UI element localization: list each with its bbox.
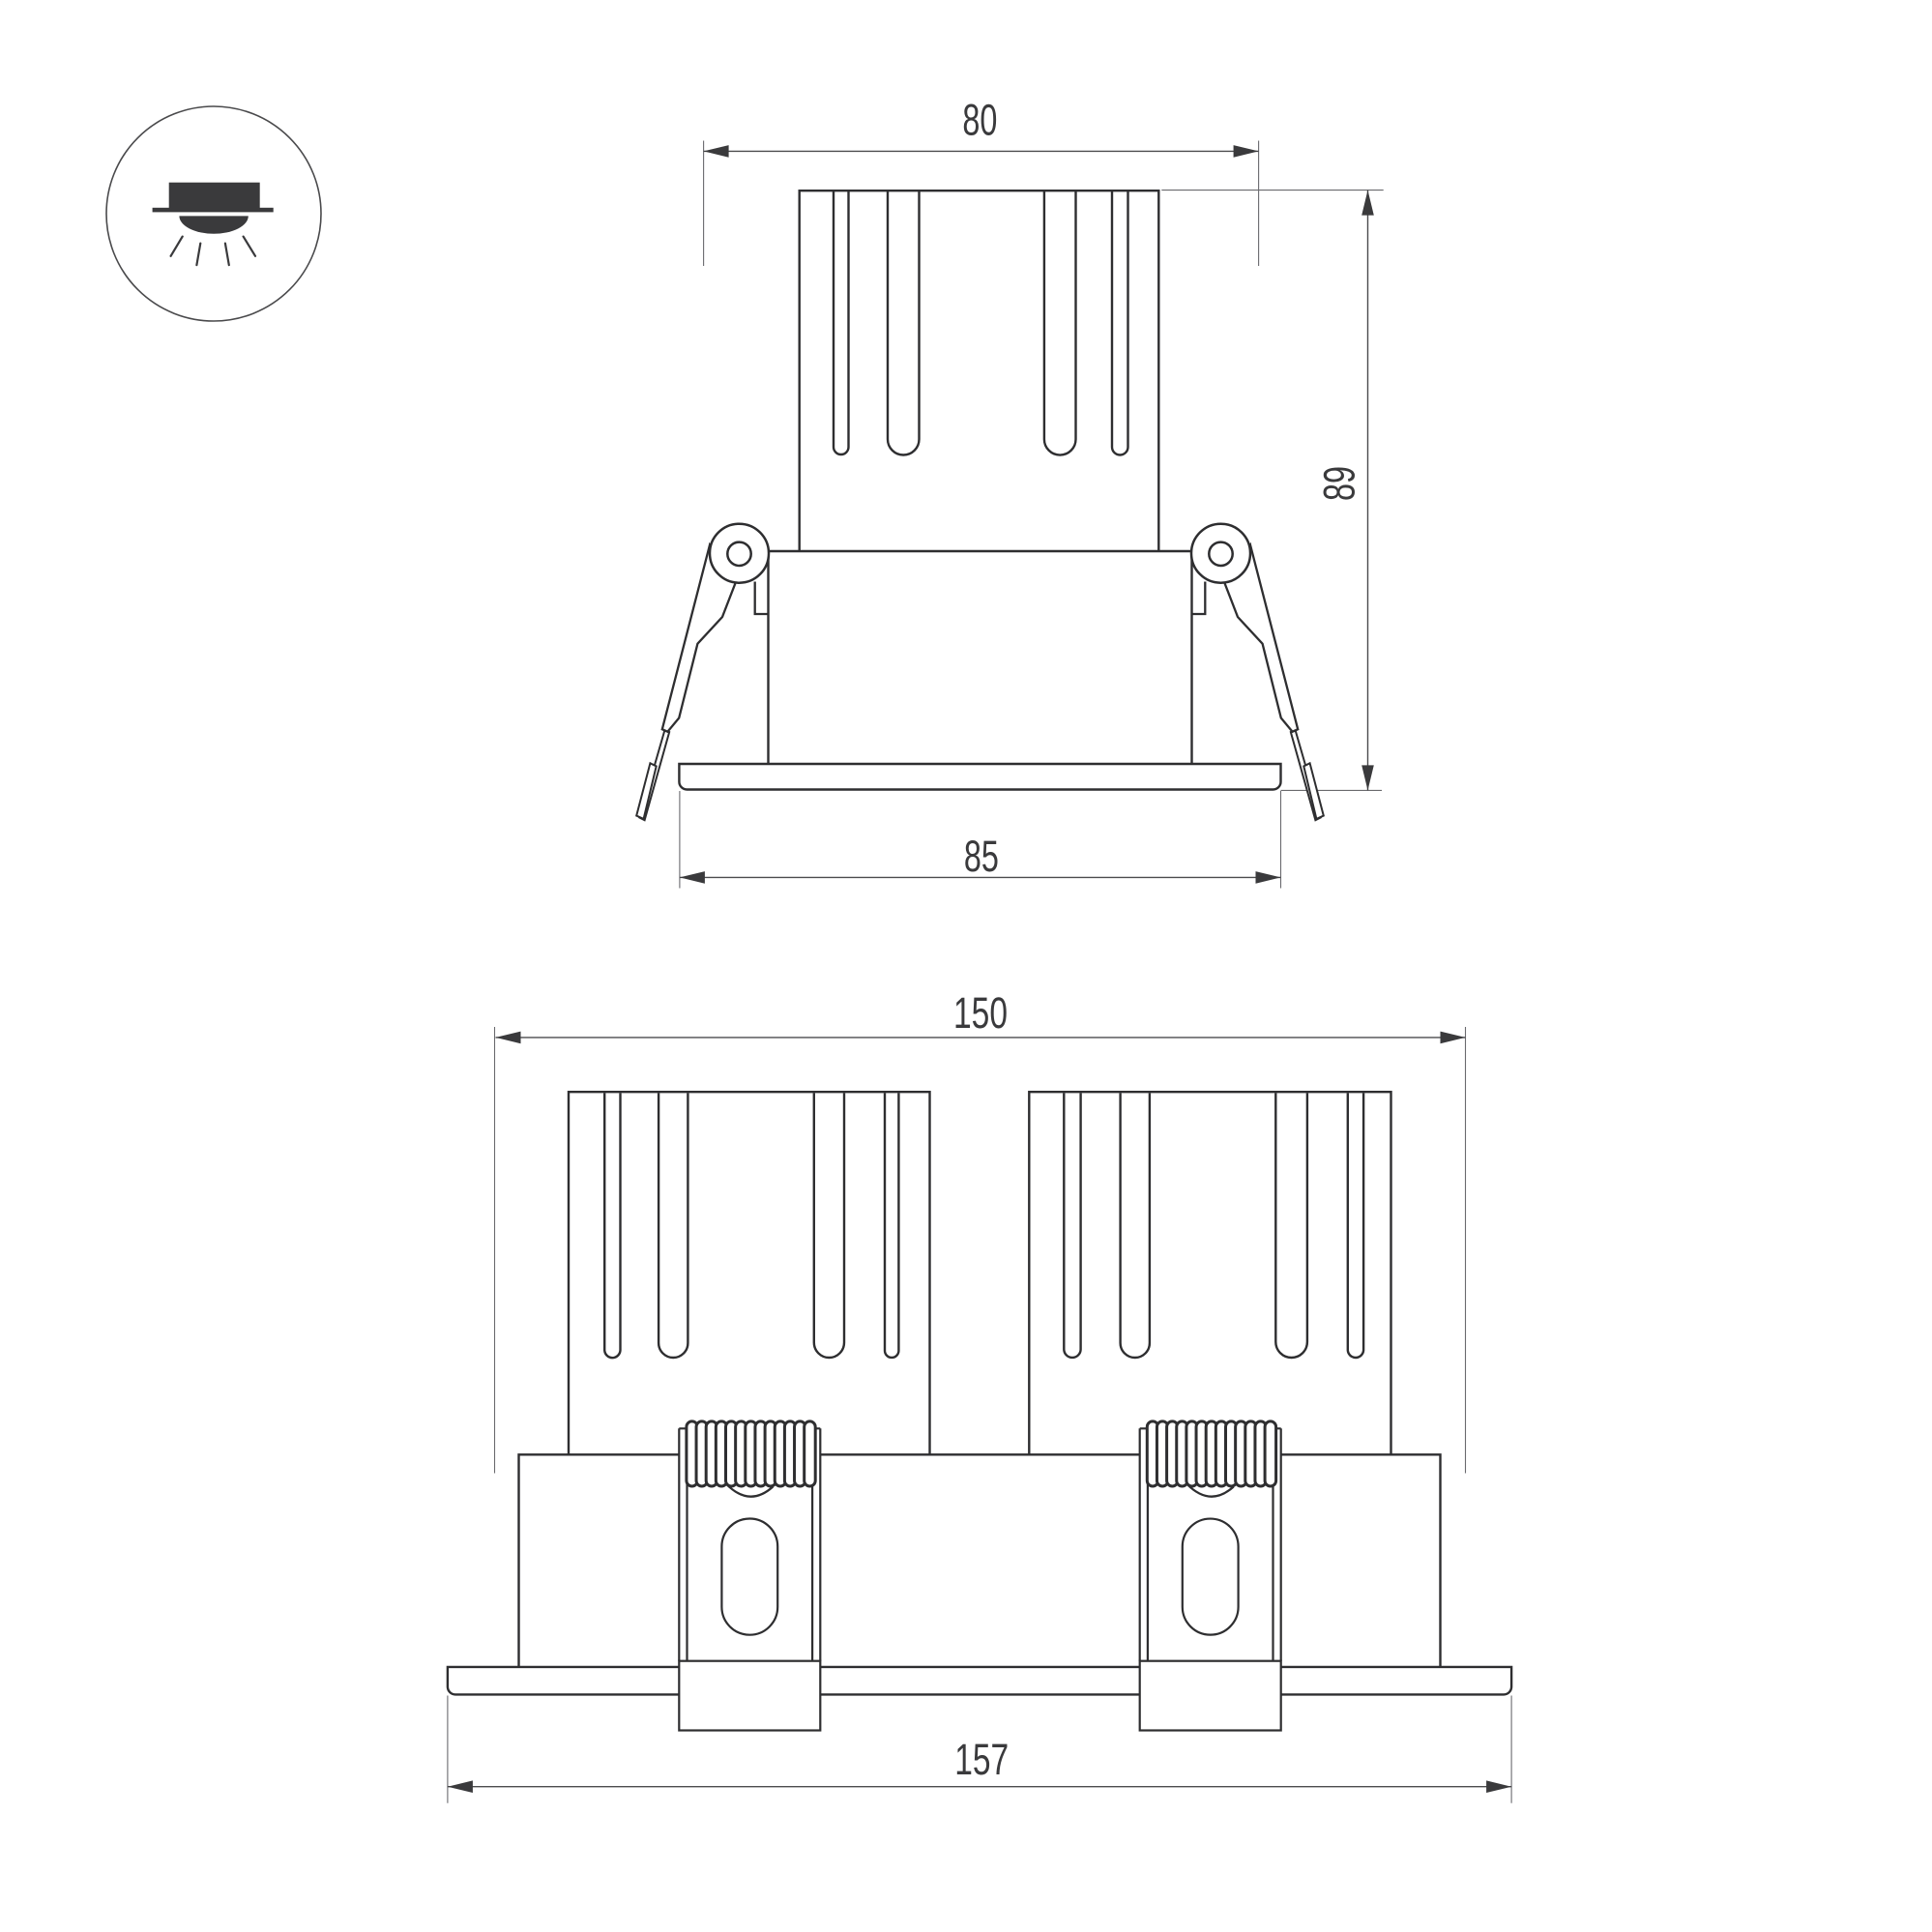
svg-text:157: 157: [954, 1735, 1009, 1784]
svg-text:80: 80: [962, 95, 997, 144]
svg-text:89: 89: [1314, 466, 1363, 501]
svg-text:150: 150: [953, 988, 1008, 1038]
svg-text:85: 85: [964, 832, 999, 881]
